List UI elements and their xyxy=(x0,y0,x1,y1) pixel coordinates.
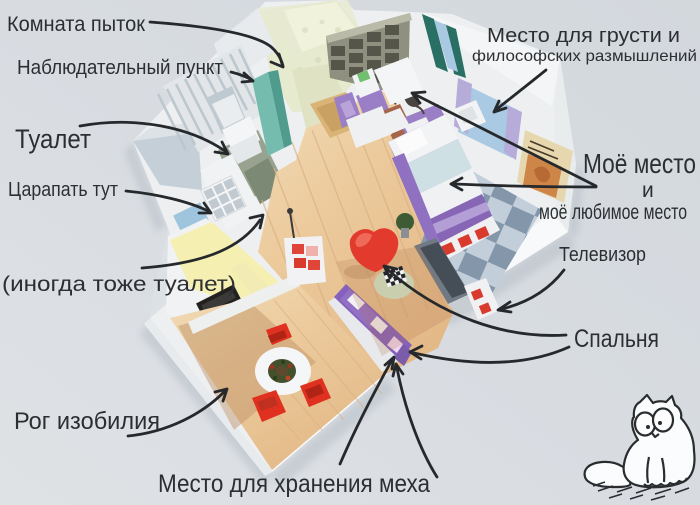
svg-text:моё любимое место: моё любимое место xyxy=(539,201,687,224)
svg-text:Комната пыток: Комната пыток xyxy=(7,13,146,36)
svg-text:Рог изобилия: Рог изобилия xyxy=(14,408,160,435)
svg-text:Место для грусти и: Место для грусти и xyxy=(487,25,680,47)
svg-text:и: и xyxy=(642,179,654,202)
svg-text:Место для хранения меха: Место для хранения меха xyxy=(158,470,430,498)
svg-text:Моё место: Моё место xyxy=(583,148,696,179)
svg-text:Телевизор: Телевизор xyxy=(559,244,646,266)
svg-text:Туалет: Туалет xyxy=(15,124,91,154)
svg-text:Царапать тут: Царапать тут xyxy=(8,179,118,201)
svg-text:Наблюдательный пункт: Наблюдательный пункт xyxy=(17,57,223,79)
svg-text:(иногда тоже туалет): (иногда тоже туалет) xyxy=(2,273,236,296)
svg-text:философских размышлений: философских размышлений xyxy=(472,48,697,65)
svg-text:Спальня: Спальня xyxy=(574,325,659,353)
